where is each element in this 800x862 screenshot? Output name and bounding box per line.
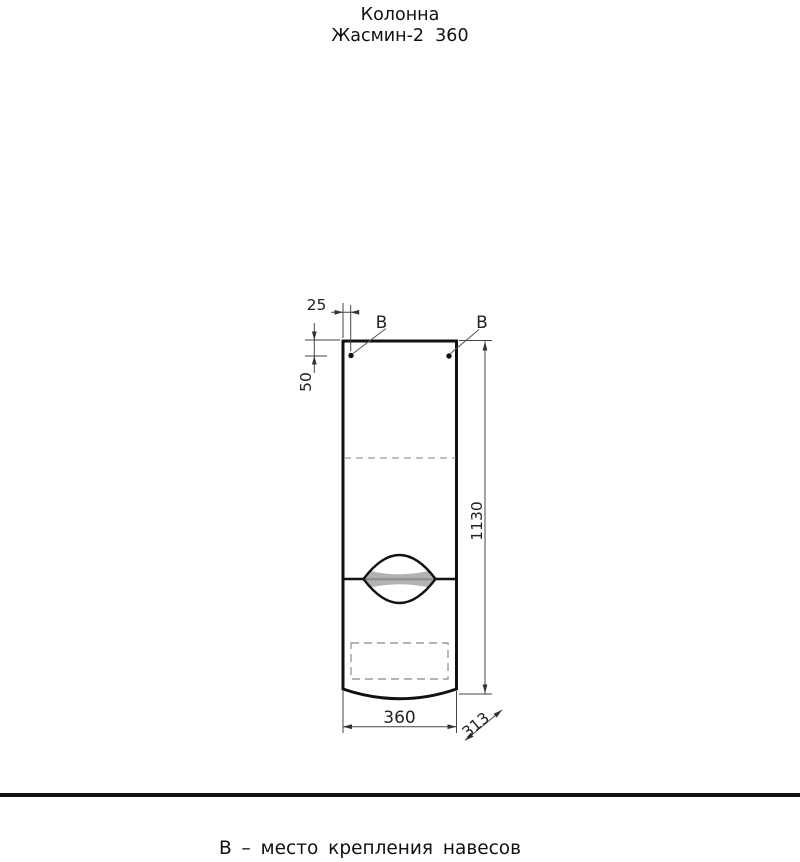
dimension-313: 313 — [459, 709, 502, 742]
dim-label-1130: 1130 — [468, 501, 486, 540]
dim-label-50: 50 — [297, 372, 315, 392]
dimension-50: 50 — [297, 323, 340, 392]
page-title: Колонна — [0, 5, 800, 26]
dim-label-313: 313 — [459, 709, 493, 742]
title-block: Колонна Жасмин-2 360 — [0, 5, 800, 46]
footer-legend: В – место крепления навесов — [0, 838, 740, 859]
dim-label-360: 360 — [383, 708, 415, 728]
marker-label-right: В — [476, 313, 488, 333]
mount-point-right — [446, 353, 451, 358]
dim-label-25: 25 — [307, 296, 327, 314]
drawing-page: Колонна Жасмин-2 360 В В — [0, 0, 800, 862]
marker-label-left: В — [376, 313, 388, 333]
page-subtitle: Жасмин-2 360 — [0, 26, 800, 46]
footer-divider — [0, 793, 800, 797]
mount-point-left — [348, 353, 353, 358]
cabinet-outline — [343, 341, 457, 699]
dimension-1130: 1130 — [459, 341, 492, 695]
cabinet-front-view-drawing: В В 25 50 1130 — [285, 292, 515, 752]
